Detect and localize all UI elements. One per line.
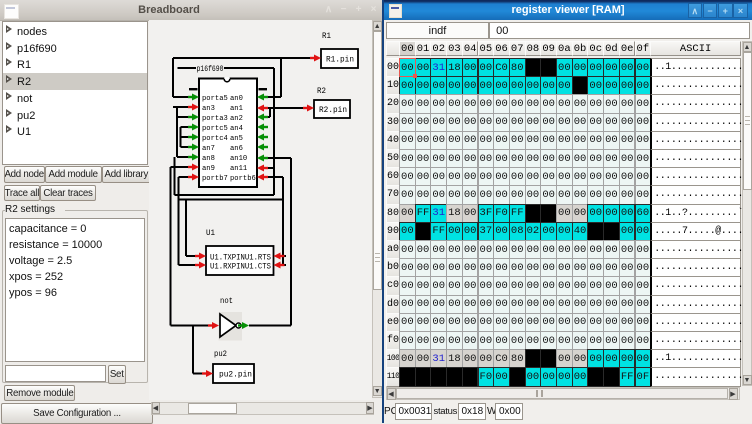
svg-text:an3: an3 [202, 105, 215, 113]
svg-text:an7: an7 [202, 145, 215, 153]
svg-text:an4: an4 [230, 125, 243, 133]
svg-text:an1: an1 [230, 105, 243, 113]
svg-text:U1: U1 [206, 228, 215, 238]
svg-text:pu2.pin: pu2.pin [219, 370, 252, 380]
svg-text:portc4: portc4 [202, 135, 228, 143]
svg-text:an2: an2 [230, 115, 243, 123]
svg-text:portc5: portc5 [202, 125, 228, 133]
svg-text:R1: R1 [322, 31, 331, 41]
svg-text:porta3: porta3 [202, 115, 228, 123]
svg-text:an11: an11 [230, 165, 248, 173]
svg-text:U1.RXPINU1.CTS: U1.RXPINU1.CTS [210, 262, 271, 272]
svg-text:not: not [220, 296, 233, 306]
svg-text:portb6: portb6 [230, 175, 256, 183]
svg-text:an5: an5 [230, 135, 243, 143]
svg-text:p16f690: p16f690 [197, 65, 224, 74]
svg-text:porta5: porta5 [202, 95, 228, 103]
svg-text:pu2: pu2 [214, 349, 227, 359]
svg-text:portb7: portb7 [202, 175, 228, 183]
svg-text:R2.pin: R2.pin [319, 105, 347, 115]
svg-text:an0: an0 [230, 95, 243, 103]
svg-text:R1.pin: R1.pin [326, 55, 354, 65]
svg-text:an9: an9 [202, 165, 215, 173]
svg-text:an10: an10 [230, 155, 248, 163]
svg-text:an6: an6 [230, 145, 243, 153]
svg-text:R2: R2 [317, 86, 326, 96]
svg-text:an8: an8 [202, 155, 215, 163]
